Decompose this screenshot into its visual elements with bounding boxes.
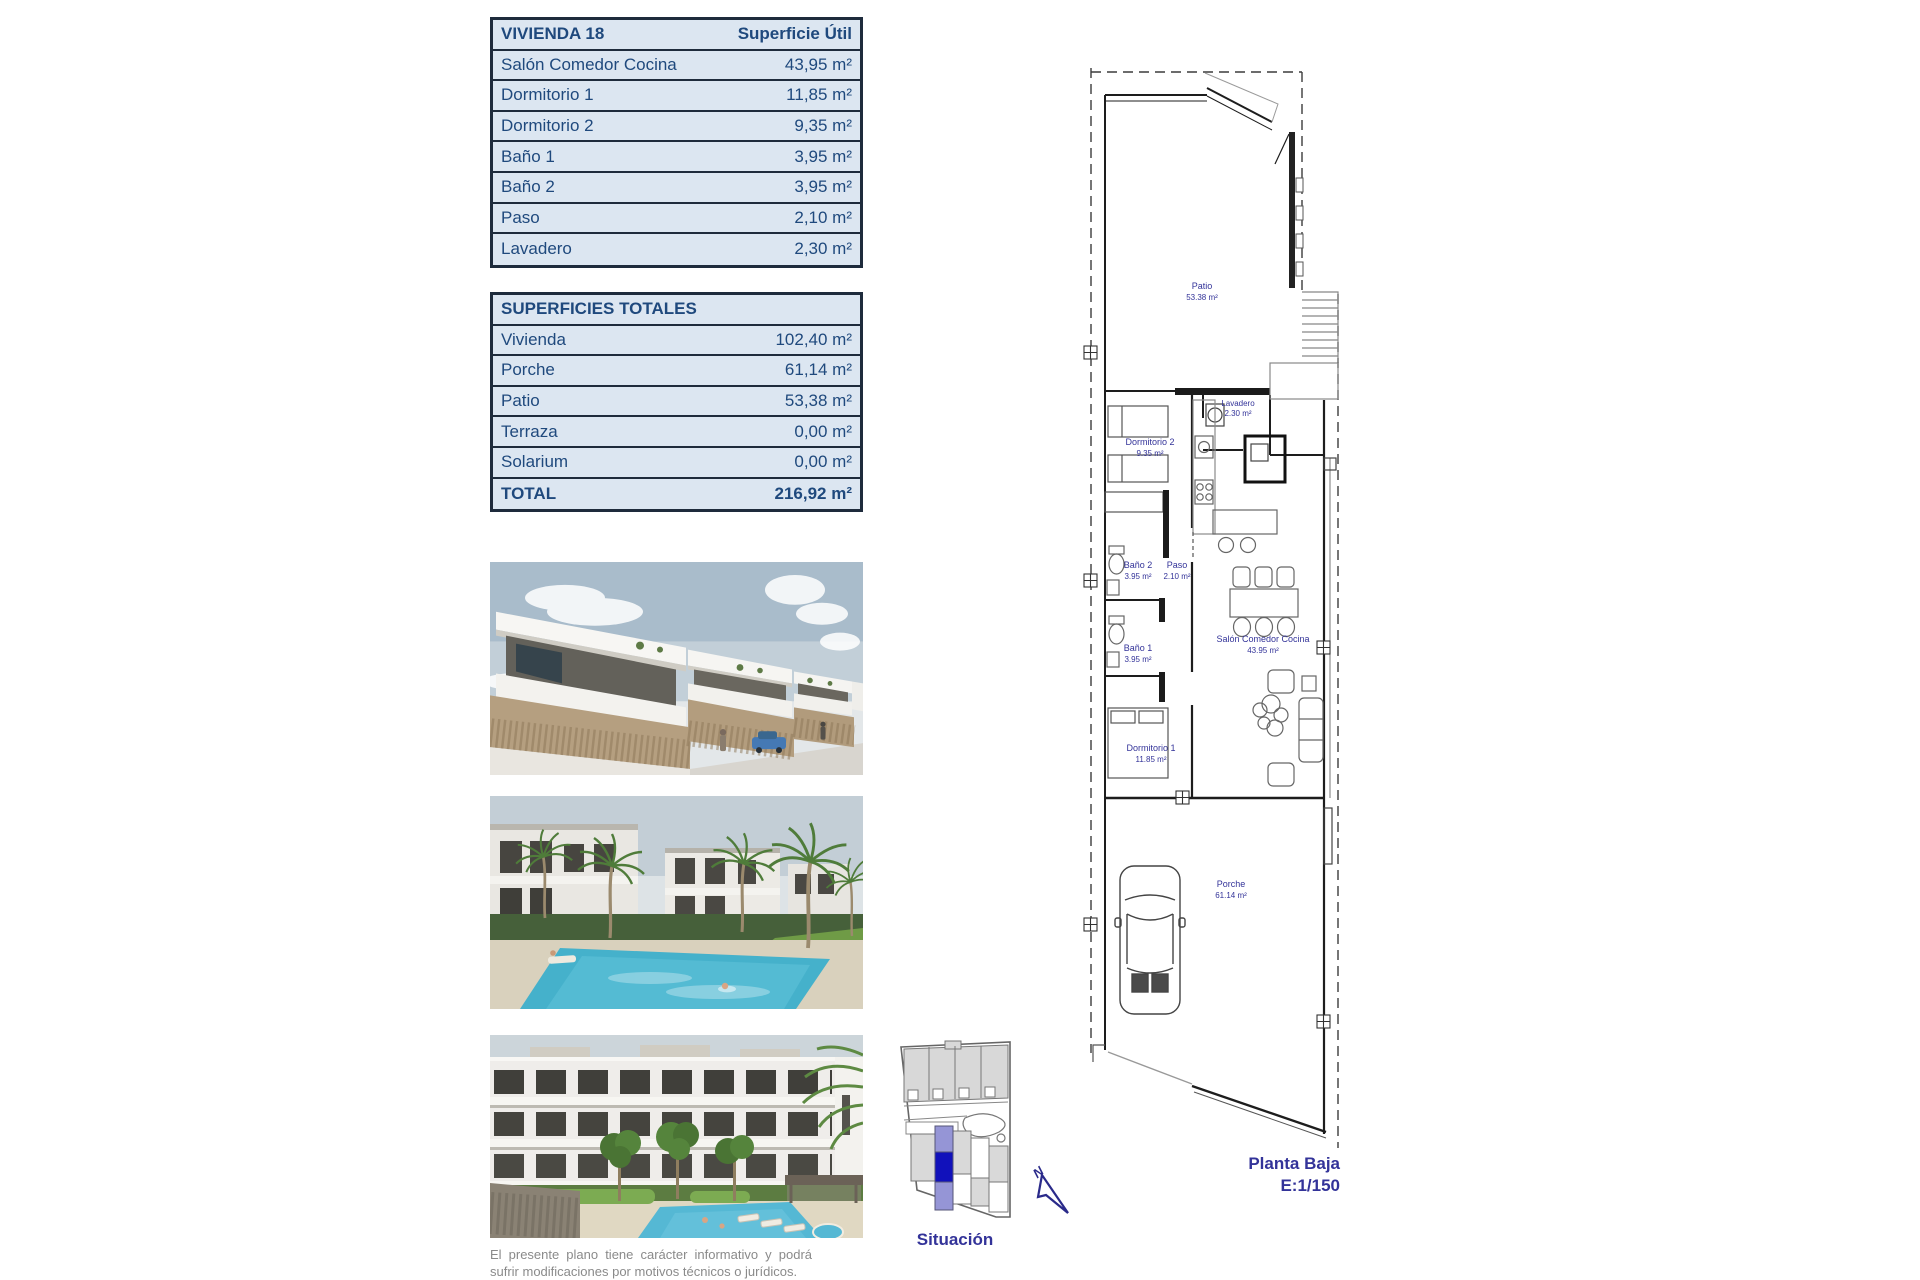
render-photo-pool <box>490 796 863 1009</box>
surface-label: Patio <box>501 391 540 411</box>
entry-wall <box>1289 132 1295 288</box>
plot-boundary <box>1091 68 1338 1148</box>
highlighted-plot <box>935 1126 953 1210</box>
room-value: 3,95 m² <box>794 177 852 197</box>
room-label: Baño 2 <box>501 177 555 197</box>
room-label: Lavadero <box>501 239 572 259</box>
surface-label: Solarium <box>501 452 568 472</box>
room-value: 43,95 m² <box>785 55 852 75</box>
room-area: 3.95 m² <box>1124 572 1151 581</box>
total-value: 216,92 m² <box>775 484 853 504</box>
table-row: Lavadero 2,30 m² <box>493 234 860 265</box>
room-area: 2.10 m² <box>1163 572 1190 581</box>
table-row: Terraza 0,00 m² <box>493 417 860 448</box>
apartments-render-graphic <box>490 1035 863 1238</box>
dining-set <box>1230 567 1298 637</box>
table-row: Vivienda 102,40 m² <box>493 326 860 357</box>
surface-label: Vivienda <box>501 330 566 350</box>
room-label: Baño 2 <box>1124 560 1153 570</box>
table-row: Solarium 0,00 m² <box>493 448 860 479</box>
porch-column <box>1324 808 1332 864</box>
table-header-row: VIVIENDA 18 Superficie Útil <box>493 20 860 51</box>
room-label: Dormitorio 2 <box>1125 437 1174 447</box>
table-title: VIVIENDA 18 <box>501 24 604 44</box>
table-header-row: SUPERFICIES TOTALES <box>493 295 860 326</box>
table-row: Porche 61,14 m² <box>493 356 860 387</box>
table-title: SUPERFICIES TOTALES <box>501 299 697 319</box>
room-area: 43.95 m² <box>1247 646 1279 655</box>
total-label: TOTAL <box>501 484 556 504</box>
plan-caption: Planta Baja E:1/150 <box>1140 1153 1340 1197</box>
table-row: Dormitorio 2 9,35 m² <box>493 112 860 143</box>
table-row: Patio 53,38 m² <box>493 387 860 418</box>
room-label: Porche <box>1217 879 1246 889</box>
room-label: Dormitorio 1 <box>501 85 594 105</box>
room-value: 2,30 m² <box>794 239 852 259</box>
room-area: 9.35 m² <box>1136 449 1163 458</box>
room-labels: Patio 53.38 m² Lavadero 2.30 m² Dormitor… <box>1124 281 1310 900</box>
room-label: Paso <box>501 208 540 228</box>
room-label: Salón Comedor Cocina <box>501 55 677 75</box>
bath1-fixtures <box>1107 616 1124 667</box>
north-arrow-icon: N <box>1028 1163 1076 1219</box>
table-row: Salón Comedor Cocina 43,95 m² <box>493 51 860 82</box>
plan-caption-title: Planta Baja <box>1140 1153 1340 1175</box>
room-area: 11.85 m² <box>1136 755 1167 764</box>
room-value: 11,85 m² <box>786 85 852 105</box>
table-row: Paso 2,10 m² <box>493 204 860 235</box>
room-label: Salón Comedor Cocina <box>1216 634 1309 644</box>
room-value: 2,10 m² <box>794 208 852 228</box>
street-render-graphic <box>490 562 863 775</box>
surface-label: Porche <box>501 360 555 380</box>
vivienda-table: VIVIENDA 18 Superficie Útil Salón Comedo… <box>490 17 863 268</box>
room-label: Baño 1 <box>1124 643 1153 653</box>
room-label: Dormitorio 2 <box>501 116 594 136</box>
stairs <box>1270 292 1338 399</box>
surface-value: 0,00 m² <box>794 452 852 472</box>
living-furniture <box>1253 670 1323 786</box>
surface-value: 61,14 m² <box>785 360 852 380</box>
table-header-value: Superficie Útil <box>738 24 852 44</box>
totales-table: SUPERFICIES TOTALES Vivienda 102,40 m² P… <box>490 292 863 512</box>
appliance-nook <box>1245 436 1285 482</box>
table-row: Baño 1 3,95 m² <box>493 142 860 173</box>
bath2-fixtures <box>1107 546 1124 595</box>
floor-plan: Patio 53.38 m² Lavadero 2.30 m² Dormitor… <box>1080 60 1355 1160</box>
table-row: Baño 2 3,95 m² <box>493 173 860 204</box>
room-label: Dormitorio 1 <box>1126 743 1175 753</box>
room-label: Paso <box>1167 560 1188 570</box>
room-area: 3.95 m² <box>1124 655 1151 664</box>
surface-label: Terraza <box>501 422 558 442</box>
room-area: 53.38 m² <box>1186 293 1218 302</box>
surface-value: 0,00 m² <box>794 422 852 442</box>
situacion-map <box>893 1038 1017 1224</box>
render-photo-street <box>490 562 863 775</box>
wardrobe <box>1105 490 1169 558</box>
table-row: Dormitorio 1 11,85 m² <box>493 81 860 112</box>
room-label: Patio <box>1192 281 1213 291</box>
thick-wall <box>1175 388 1270 395</box>
surface-value: 102,40 m² <box>775 330 852 350</box>
surface-value: 53,38 m² <box>785 391 852 411</box>
room-area: 2.30 m² <box>1224 409 1251 418</box>
render-photo-apartments <box>490 1035 863 1238</box>
car-top-view <box>1115 866 1185 1014</box>
table-total-row: TOTAL 216,92 m² <box>493 479 860 510</box>
situacion-label: Situación <box>880 1230 1030 1250</box>
room-value: 3,95 m² <box>794 147 852 167</box>
pool-render-graphic <box>490 796 863 1009</box>
room-area: 61.14 m² <box>1215 891 1247 900</box>
plan-caption-scale: E:1/150 <box>1140 1175 1340 1197</box>
disclaimer-text: El presente plano tiene carácter informa… <box>490 1247 812 1280</box>
room-label: Lavadero <box>1221 399 1255 408</box>
room-label: Baño 1 <box>501 147 555 167</box>
room-value: 9,35 m² <box>794 116 852 136</box>
plan-sheet-page: VIVIENDA 18 Superficie Útil Salón Comedo… <box>0 0 1920 1280</box>
